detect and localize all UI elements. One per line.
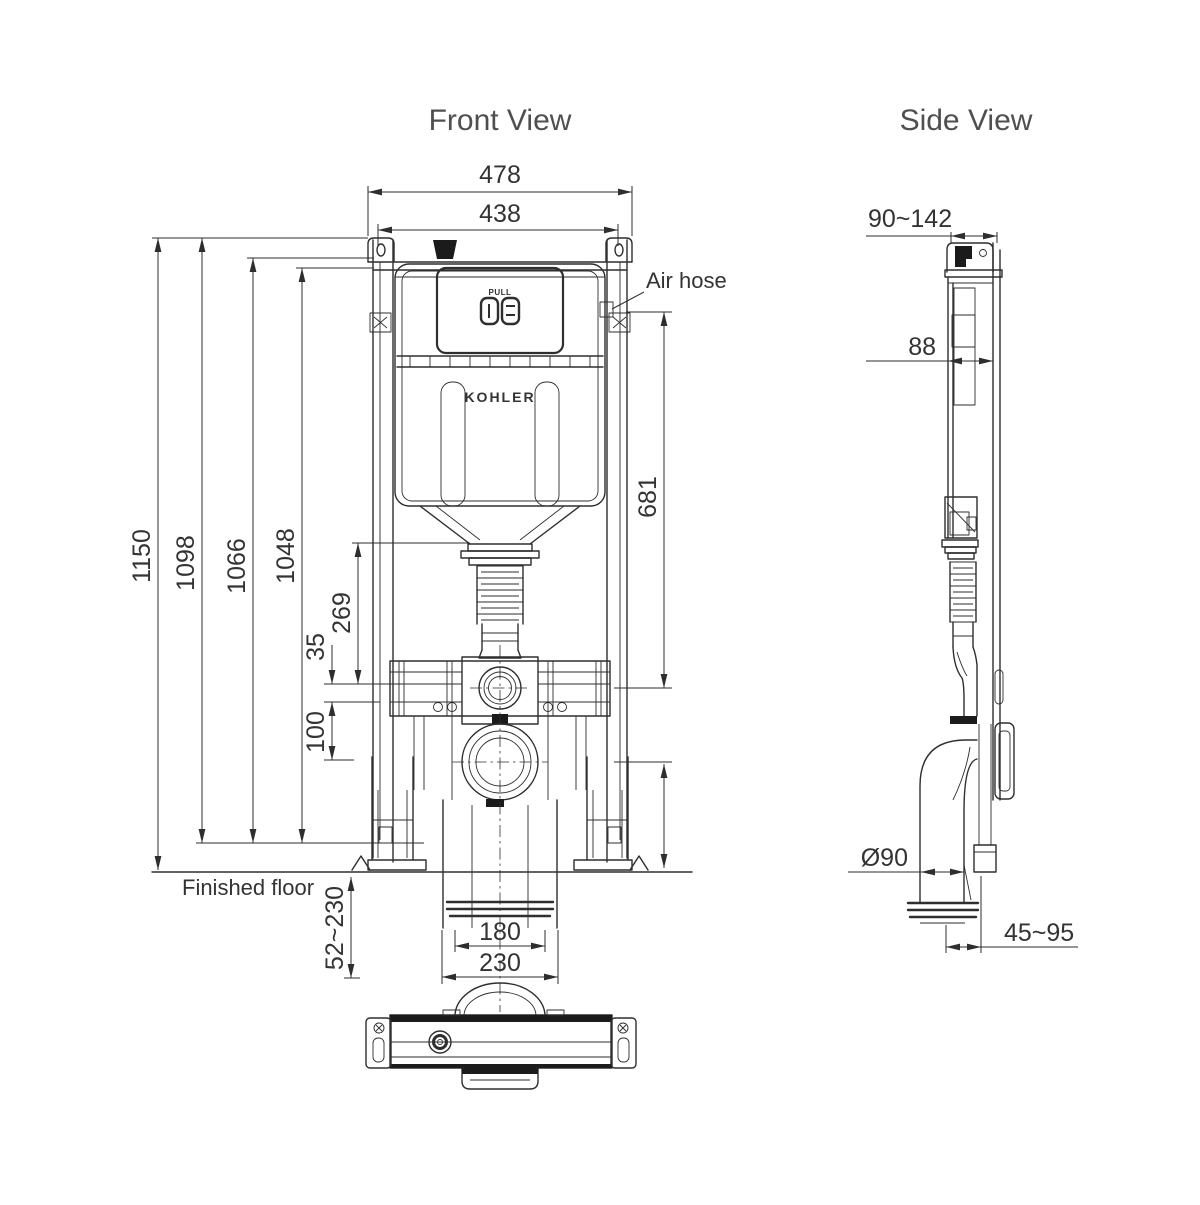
flush-button-icon xyxy=(481,298,519,324)
technical-drawing: Front View 478 438 1150 1098 1066 1048 xyxy=(0,0,1200,1200)
guide-channel-right xyxy=(535,382,559,506)
side-valve-detail xyxy=(945,497,977,538)
front-view-title: Front View xyxy=(429,104,572,137)
air-hose-label: Air hose xyxy=(646,268,727,293)
guide-channel-left xyxy=(441,382,465,506)
dim-label-45-95: 45~95 xyxy=(1004,919,1074,947)
air-hose-annotation: Air hose xyxy=(600,268,727,317)
dim-label-438: 438 xyxy=(479,200,521,228)
side-view-title: Side View xyxy=(900,104,1033,137)
dim-label-35: 35 xyxy=(302,633,330,661)
dim-label-478: 478 xyxy=(479,161,521,189)
dim-air-hose-height: 681 xyxy=(614,312,672,868)
dim-mid-offsets: 269 35 100 xyxy=(302,543,470,760)
dim-label-1066: 1066 xyxy=(223,538,251,594)
dim-pipe-widths: 180 230 xyxy=(442,918,558,984)
brand-logo: KOHLER xyxy=(464,389,535,405)
drawing-page: Front View 478 438 1150 1098 1066 1048 xyxy=(0,0,1200,1200)
plan-protrusion xyxy=(462,1068,538,1089)
top-clip xyxy=(433,240,457,259)
dim-outlet-distance: 45~95 xyxy=(946,876,1078,953)
side-tank xyxy=(942,277,993,559)
foot-right xyxy=(574,757,648,870)
side-flush-pipe xyxy=(950,562,977,724)
finished-floor: Finished floor xyxy=(152,872,692,900)
dim-mounting-width: 438 xyxy=(378,200,618,246)
cistern-tank: KOHLER xyxy=(395,264,605,544)
plan-bracket-left xyxy=(366,1018,391,1068)
dim-label-1048: 1048 xyxy=(272,528,300,584)
dim-label-100: 100 xyxy=(302,711,330,753)
dim-outlet-diameter: Ø90 xyxy=(848,844,964,872)
dim-floor-adjust: 52~230 xyxy=(321,877,360,978)
dim-depth-range: 90~142 xyxy=(866,205,997,243)
side-outlet-elbow xyxy=(908,724,996,923)
side-rail xyxy=(993,243,1003,800)
plan-bracket-right xyxy=(611,1018,636,1068)
dim-label-1150: 1150 xyxy=(128,529,156,583)
dim-label-681: 681 xyxy=(634,476,662,518)
side-view: Side View 90~142 xyxy=(848,104,1078,953)
foot-left xyxy=(352,757,426,870)
plan-view xyxy=(366,983,636,1089)
front-view: Front View 478 438 1150 1098 1066 1048 xyxy=(128,104,727,1089)
dim-label-230: 230 xyxy=(479,949,521,977)
flush-button-label: PULL xyxy=(489,288,512,297)
dim-label-88: 88 xyxy=(908,333,936,361)
dim-label-269: 269 xyxy=(328,592,356,634)
dim-label-52-230: 52~230 xyxy=(321,886,349,970)
dim-label-1098: 1098 xyxy=(172,535,200,591)
access-panel: PULL xyxy=(437,268,563,353)
dim-label-90-142: 90~142 xyxy=(868,205,952,233)
dim-label-d90: Ø90 xyxy=(861,844,908,872)
side-foot xyxy=(995,723,1014,799)
flush-pipe xyxy=(461,544,539,658)
finished-floor-label: Finished floor xyxy=(182,875,314,900)
dim-label-180: 180 xyxy=(479,918,521,946)
